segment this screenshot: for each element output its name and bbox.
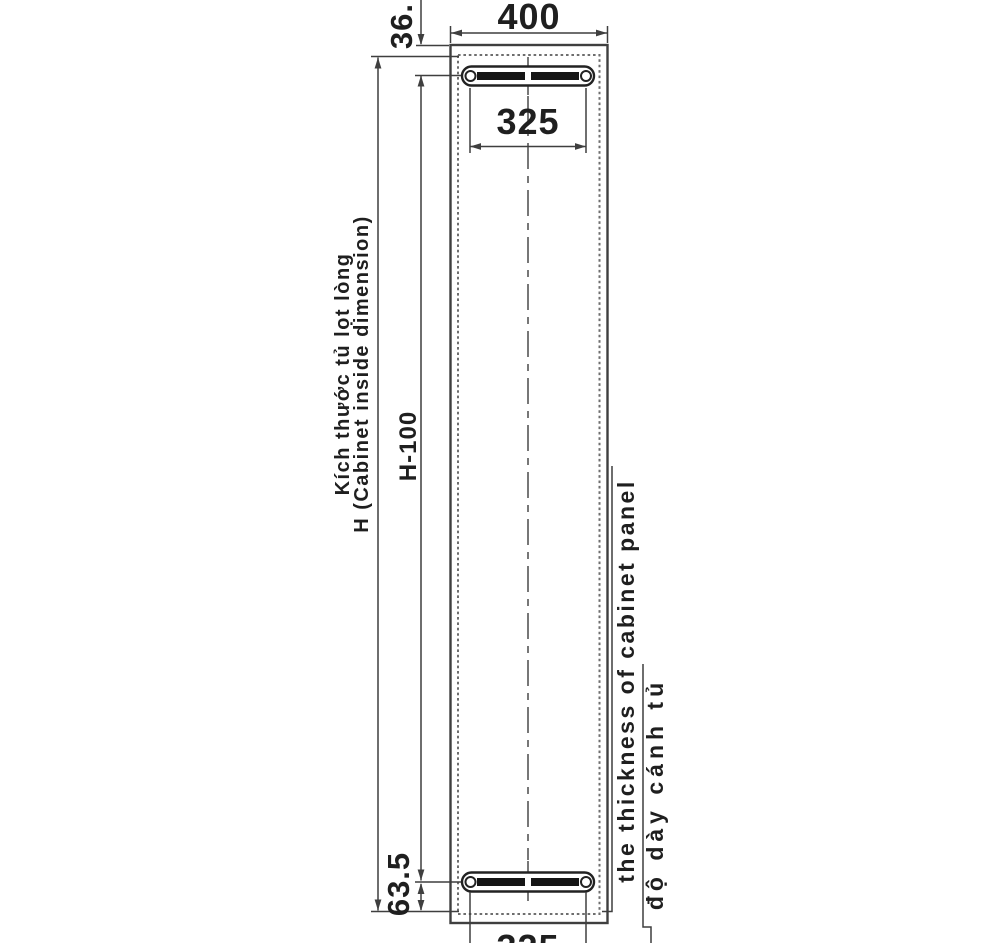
panel-thickness-label-en: the thickness of cabinet panel [613, 446, 639, 916]
inside-dimension-label: Kích thước tủ lọt lòng H (Cabinet inside… [334, 164, 372, 584]
dim-label-bottom-rail-offset: 63.5 [382, 829, 416, 939]
cabinet-outer-outline [451, 45, 608, 923]
dim-label-rail-width-bottom: 325 [468, 931, 588, 943]
panel-thickness-label-vi: độ dày cánh tủ [642, 649, 668, 939]
dim-label-cabinet-width: 400 [469, 0, 589, 34]
dim-line-63-5 [418, 883, 425, 911]
technical-drawing-canvas: 400 325 36. Kích thước tủ lọt lòng H (Ca… [0, 0, 1000, 943]
bottom-hanging-rail [462, 873, 594, 892]
dim-label-rail-spacing: H-100 [396, 376, 422, 516]
top-hanging-rail [462, 67, 594, 86]
dim-label-top-rail-offset: 36. [385, 0, 419, 71]
inside-dimension-label-en: H (Cabinet inside dimension) [353, 164, 372, 584]
dim-line-36 [416, 0, 449, 46]
dim-label-rail-width-top: 325 [468, 103, 588, 141]
